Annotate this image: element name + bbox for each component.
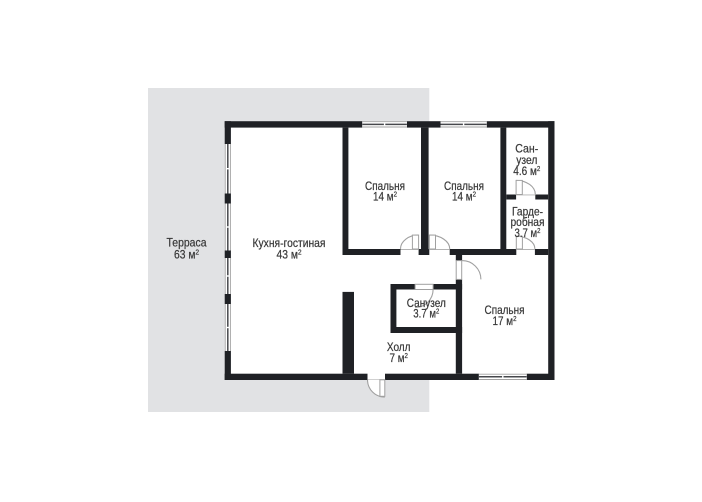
svg-text:3.7 м2: 3.7 м2: [515, 226, 541, 240]
svg-text:43 м2: 43 м2: [277, 248, 302, 262]
svg-text:63 м2: 63 м2: [174, 248, 199, 262]
svg-text:17 м2: 17 м2: [493, 314, 517, 328]
svg-text:14 м2: 14 м2: [452, 189, 476, 203]
svg-text:4.6 м2: 4.6 м2: [513, 164, 540, 178]
svg-text:3.7 м2: 3.7 м2: [413, 307, 439, 321]
svg-text:14 м2: 14 м2: [373, 189, 397, 203]
